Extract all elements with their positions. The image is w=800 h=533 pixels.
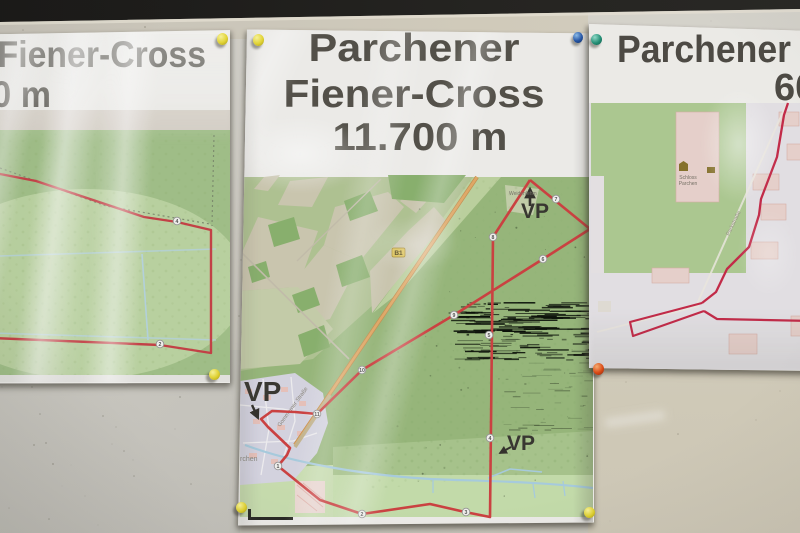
svg-text:10: 10 xyxy=(359,368,365,374)
svg-text:9: 9 xyxy=(453,313,456,319)
svg-text:600 m: 600 m xyxy=(774,67,800,109)
svg-text:7: 7 xyxy=(555,197,558,203)
svg-text:11.700 m: 11.700 m xyxy=(333,116,508,159)
svg-text:1: 1 xyxy=(277,464,280,470)
svg-text:VP: VP xyxy=(507,432,535,455)
svg-text:rchen: rchen xyxy=(240,456,258,463)
svg-text:Parchener: Parchener xyxy=(309,29,520,70)
svg-text:5: 5 xyxy=(488,333,491,339)
svg-text:Weidenlehm: Weidenlehm xyxy=(509,191,537,197)
svg-text:B1: B1 xyxy=(394,250,403,257)
svg-text:VP: VP xyxy=(244,376,281,407)
svg-text:11: 11 xyxy=(314,412,320,418)
svg-text:2: 2 xyxy=(361,512,364,518)
svg-text:4: 4 xyxy=(176,219,179,225)
svg-text:Parchen: Parchen xyxy=(679,181,698,187)
svg-text:VP: VP xyxy=(521,200,549,223)
svg-text:2: 2 xyxy=(159,342,162,348)
svg-text:6.000 m: 6.000 m xyxy=(0,74,51,115)
svg-text:3: 3 xyxy=(465,510,468,516)
svg-text:Fiener-Cross: Fiener-Cross xyxy=(284,73,545,116)
svg-text:8: 8 xyxy=(492,235,495,241)
svg-text:Parchener Fiener-Cross: Parchener Fiener-Cross xyxy=(0,34,206,75)
svg-text:6: 6 xyxy=(542,257,545,263)
svg-text:Parchener: Parchener xyxy=(617,29,791,71)
svg-text:4: 4 xyxy=(489,436,492,442)
